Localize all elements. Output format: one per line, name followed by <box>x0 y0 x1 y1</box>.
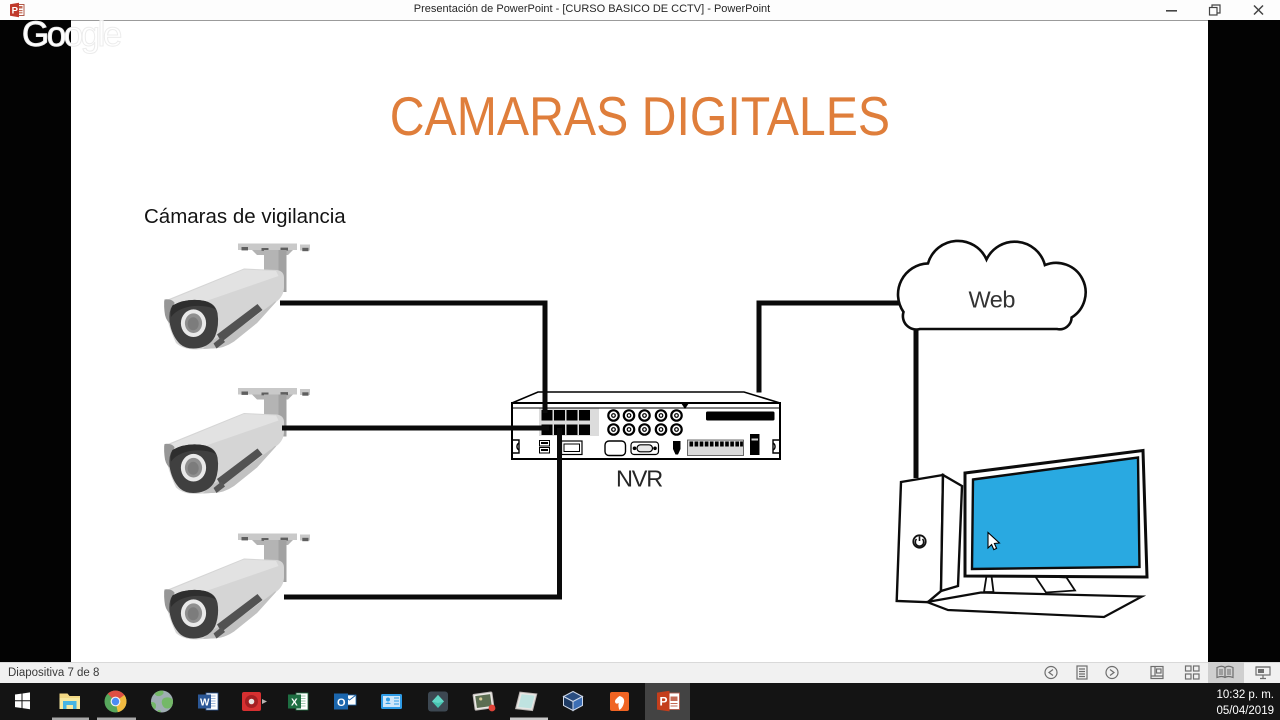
svg-text:P: P <box>660 695 668 709</box>
svg-text:Web: Web <box>969 287 1016 313</box>
svg-text:W: W <box>200 698 210 709</box>
svg-text:O: O <box>337 697 346 709</box>
svg-text:X: X <box>291 698 298 709</box>
svg-text:NVR: NVR <box>616 466 662 492</box>
